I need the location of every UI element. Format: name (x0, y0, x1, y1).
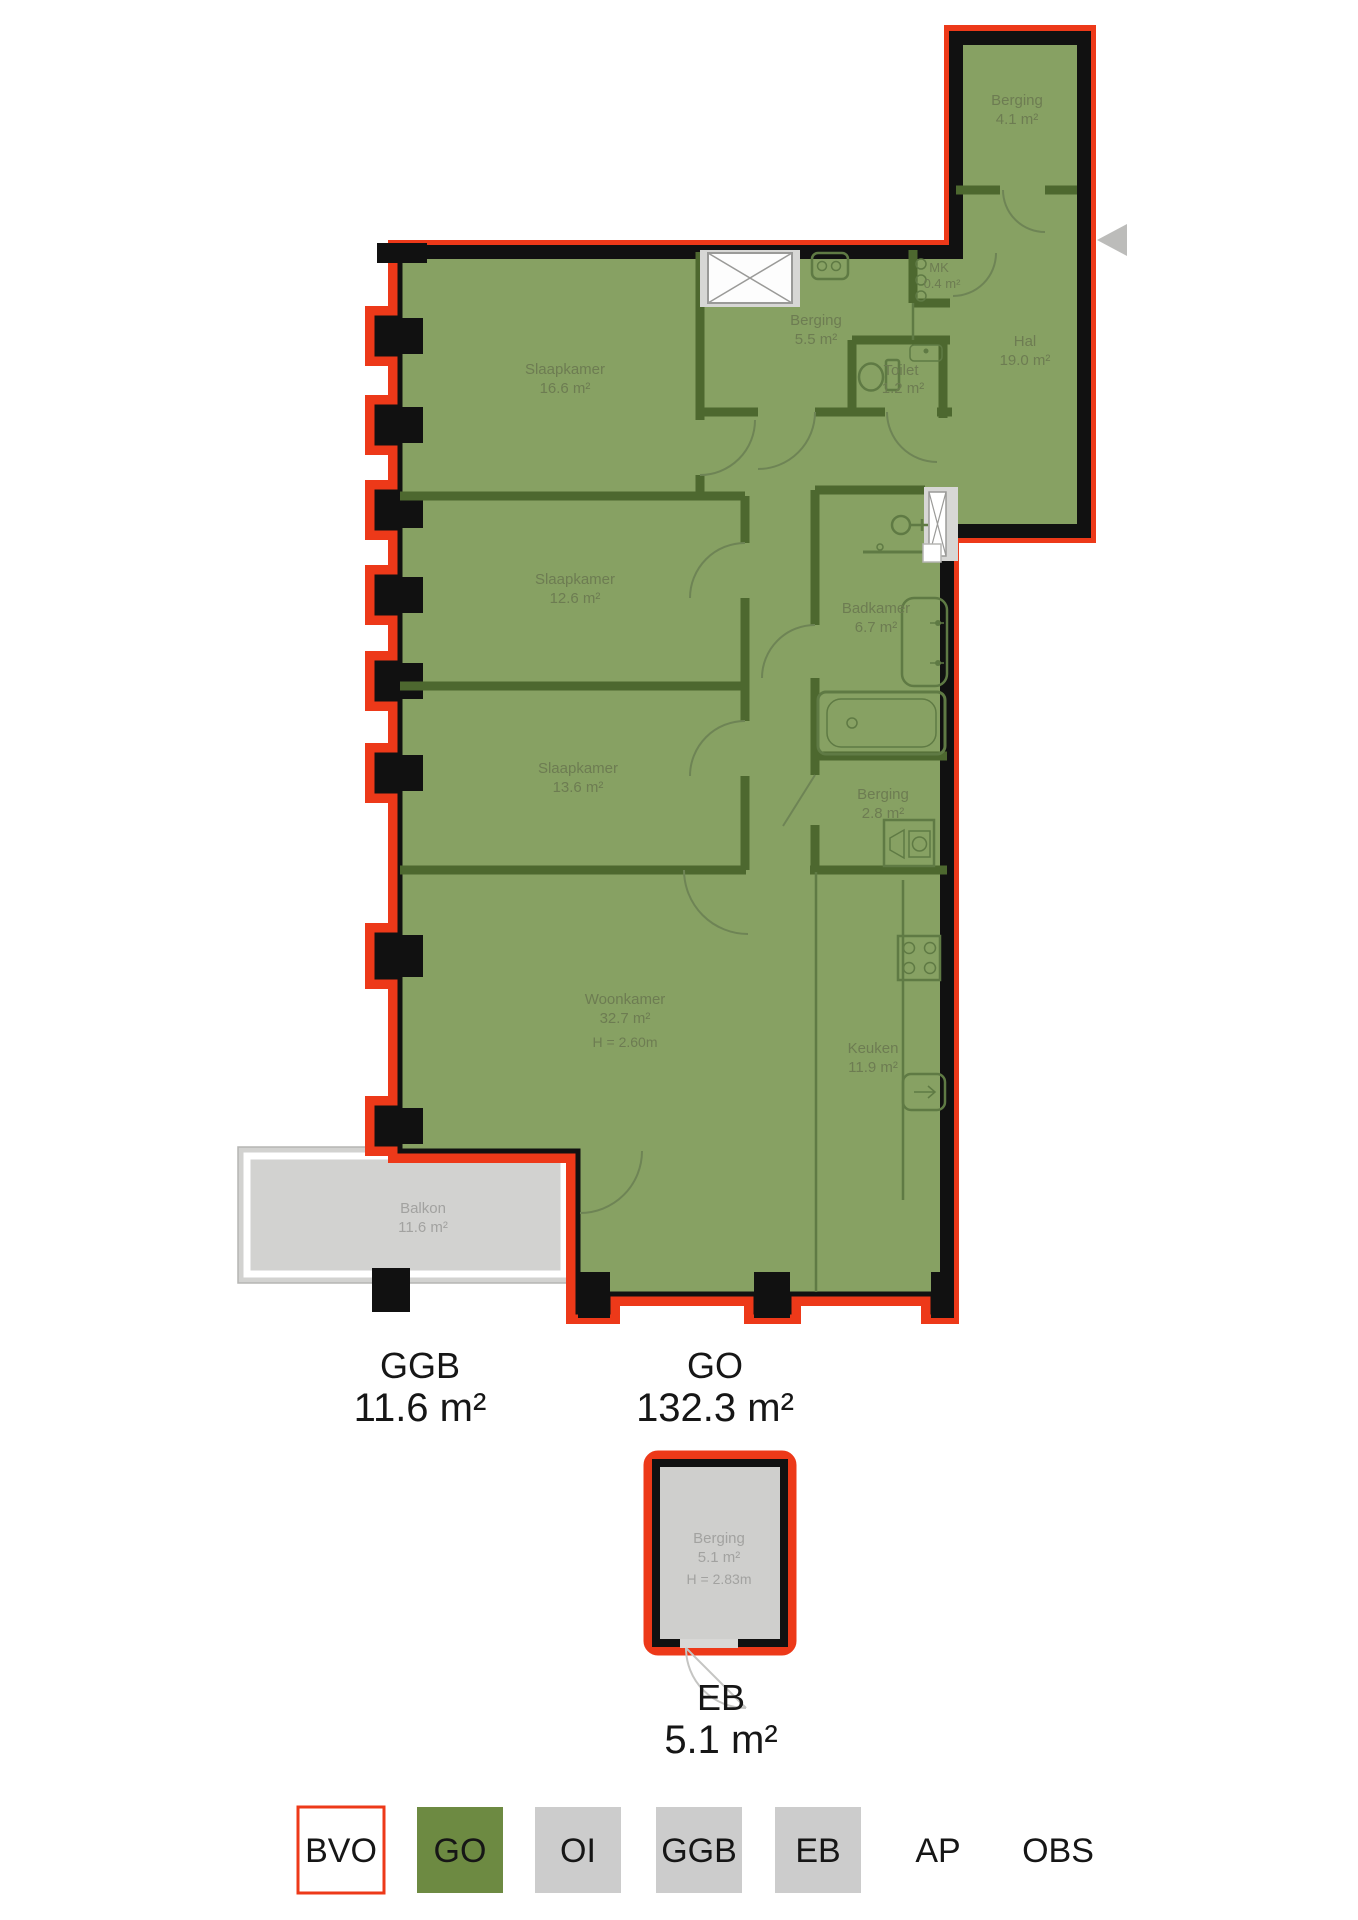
room-area: 2.8 m² (862, 805, 905, 822)
legend-item-bvo: BVO (298, 1807, 384, 1893)
room-name: Balkon (400, 1200, 446, 1217)
ggb-value: 11.6 m² (354, 1386, 487, 1430)
room-name: Berging (857, 786, 909, 803)
room-area: 0.4 m² (924, 276, 962, 291)
wall-tower-top (949, 31, 1091, 45)
area-summaries: GGB 11.6 m² GO 132.3 m² (354, 1345, 794, 1430)
eb-label: EB (697, 1677, 745, 1718)
legend-item-ggb: GGB (656, 1807, 742, 1893)
room-area: 5.5 m² (795, 331, 838, 348)
go-value: 132.3 m² (636, 1386, 794, 1430)
room-name: Keuken (848, 1040, 899, 1057)
pier-top-left (377, 243, 427, 263)
room-area: 16.6 m² (540, 380, 591, 397)
pier (377, 318, 423, 354)
legend-label: BVO (305, 1832, 377, 1870)
legend-item-eb: EB (775, 1807, 861, 1893)
room-height: H = 2.83m (687, 1571, 752, 1587)
room-name: Toilet (883, 362, 919, 379)
room-area: 1.2 m² (882, 380, 925, 397)
legend-item-go: GO (417, 1807, 503, 1893)
go-label: GO (687, 1345, 743, 1386)
room-name: Slaapkamer (525, 361, 605, 378)
legend-item-ap: AP (915, 1832, 960, 1870)
legend-label: OI (560, 1832, 596, 1870)
room-name: Hal (1014, 333, 1037, 350)
pier (377, 407, 423, 443)
room-area: 13.6 m² (553, 779, 604, 796)
legend-label: AP (915, 1832, 960, 1870)
pier (578, 1272, 610, 1318)
pier (377, 935, 423, 977)
pier (931, 1272, 954, 1318)
room-area: 19.0 m² (1000, 352, 1051, 369)
wall-top (395, 245, 963, 259)
legend-item-oi: OI (535, 1807, 621, 1893)
pier (377, 1108, 423, 1144)
eb-door-opening (680, 1639, 738, 1648)
room-area: 11.9 m² (848, 1059, 898, 1076)
legend-label: GGB (661, 1832, 737, 1870)
room-area: 4.1 m² (996, 111, 1039, 128)
pier (377, 577, 423, 613)
room-height: H = 2.60m (593, 1034, 658, 1050)
wall-tower-left (949, 31, 963, 259)
go-area (377, 37, 1084, 1312)
room-name: Woonkamer (585, 991, 666, 1008)
entry-direction-arrow-icon (1097, 224, 1127, 256)
external-storage-box: Berging 5.1 m² H = 2.83m (648, 1455, 792, 1708)
legend-item-obs: OBS (1022, 1832, 1094, 1870)
eb-value: 5.1 m² (664, 1718, 777, 1762)
room-name: Berging (693, 1530, 745, 1547)
room-name: Berging (790, 312, 842, 329)
room-label-toilet: Toilet 1.2 m² (882, 362, 925, 397)
legend-label: GO (434, 1832, 487, 1870)
room-area: 6.7 m² (855, 619, 898, 636)
room-name: Badkamer (842, 600, 910, 617)
eb-summary: EB 5.1 m² (664, 1677, 777, 1762)
legend-label: EB (795, 1832, 840, 1870)
wall-tower-right (1077, 31, 1091, 531)
pier (377, 663, 423, 699)
floor-plan-page: Berging 4.1 m² Berging 5.5 m² MK 0.4 m² … (0, 0, 1358, 1920)
room-name: MK (929, 260, 949, 275)
ggb-label: GGB (380, 1345, 460, 1386)
legend: BVO GO OI GGB EB AP OBS (298, 1807, 1094, 1893)
floor-plan-drawing: Berging 4.1 m² Berging 5.5 m² MK 0.4 m² … (0, 0, 1358, 1920)
room-area: 5.1 m² (698, 1549, 741, 1566)
room-area: 32.7 m² (600, 1010, 651, 1027)
pier (754, 1272, 790, 1318)
room-area: 11.6 m² (398, 1219, 448, 1236)
room-name: Berging (991, 92, 1043, 109)
room-area: 12.6 m² (550, 590, 601, 607)
legend-label: OBS (1022, 1832, 1094, 1870)
pier-balcony (372, 1268, 410, 1312)
wall-step (940, 524, 1091, 538)
room-name: Slaapkamer (535, 571, 615, 588)
elevator-shaft-icon (700, 250, 800, 307)
room-name: Slaapkamer (538, 760, 618, 777)
pier (377, 755, 423, 791)
